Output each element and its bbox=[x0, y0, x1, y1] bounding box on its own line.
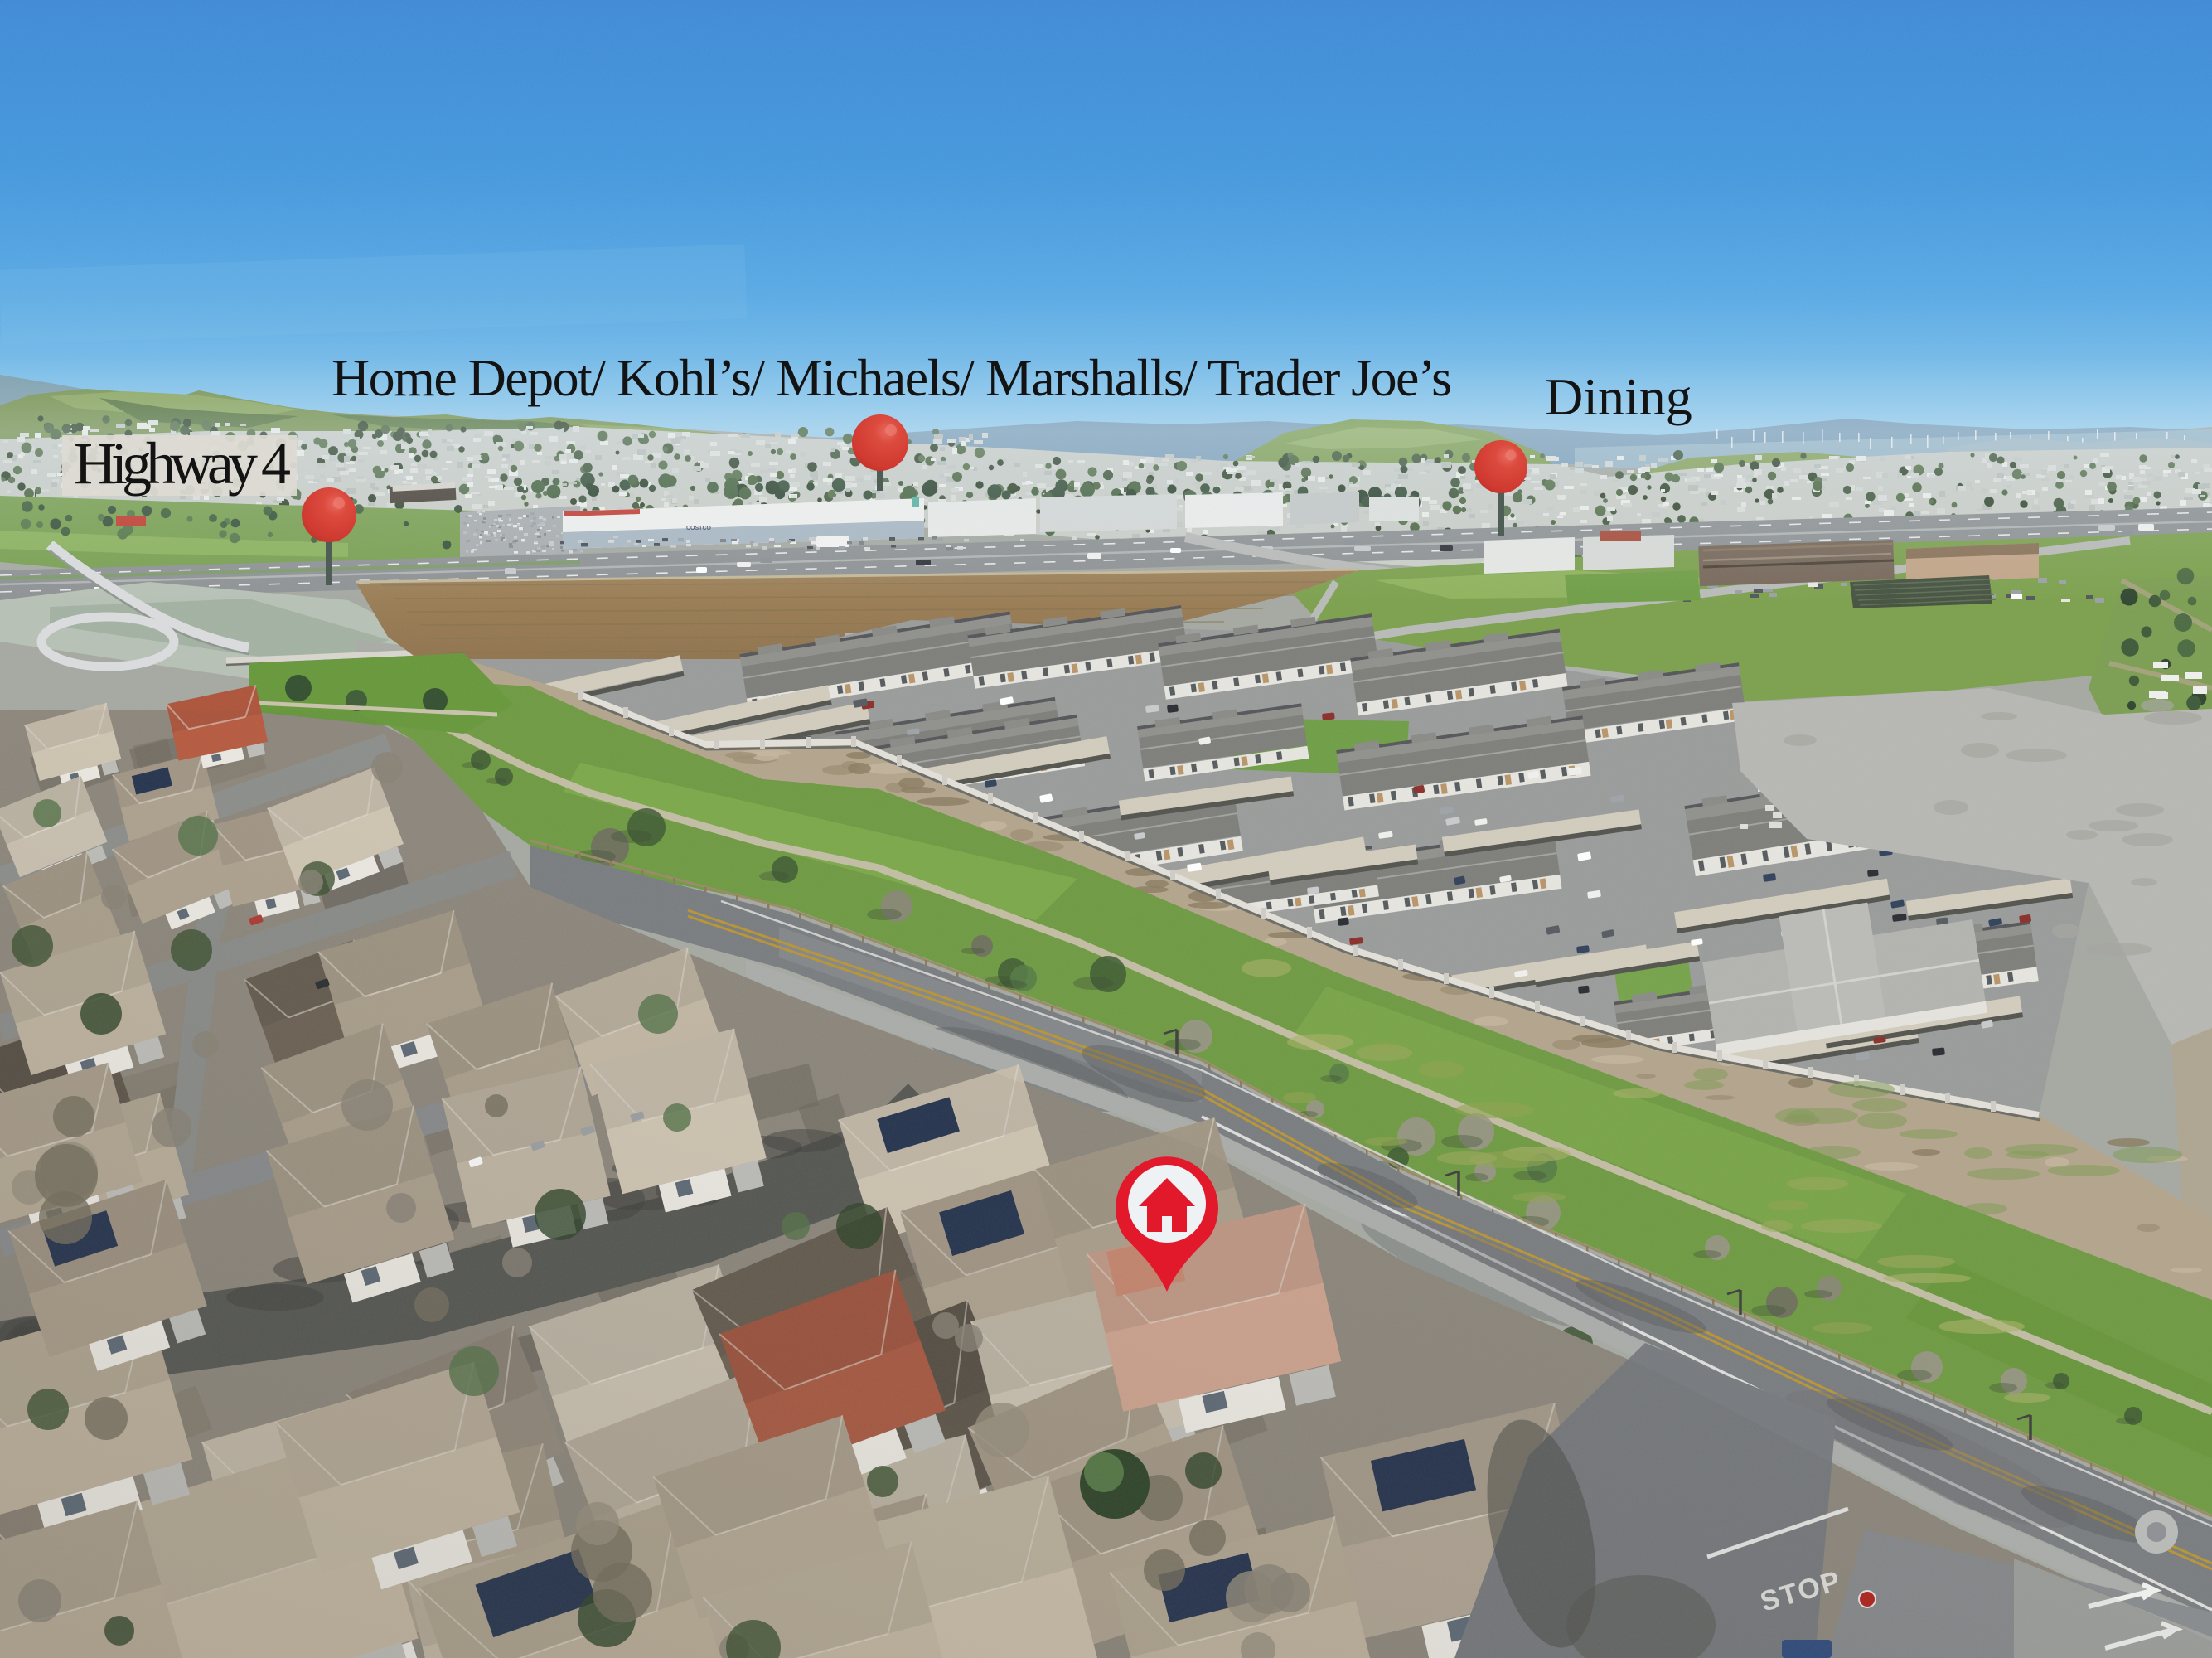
svg-text:Home Depot/ Kohl’s/ Michaels/: Home Depot/ Kohl’s/ Michaels/ Marshalls/… bbox=[332, 348, 1452, 407]
svg-text:Dining: Dining bbox=[1545, 367, 1692, 426]
svg-text:Highway 4: Highway 4 bbox=[74, 430, 291, 497]
